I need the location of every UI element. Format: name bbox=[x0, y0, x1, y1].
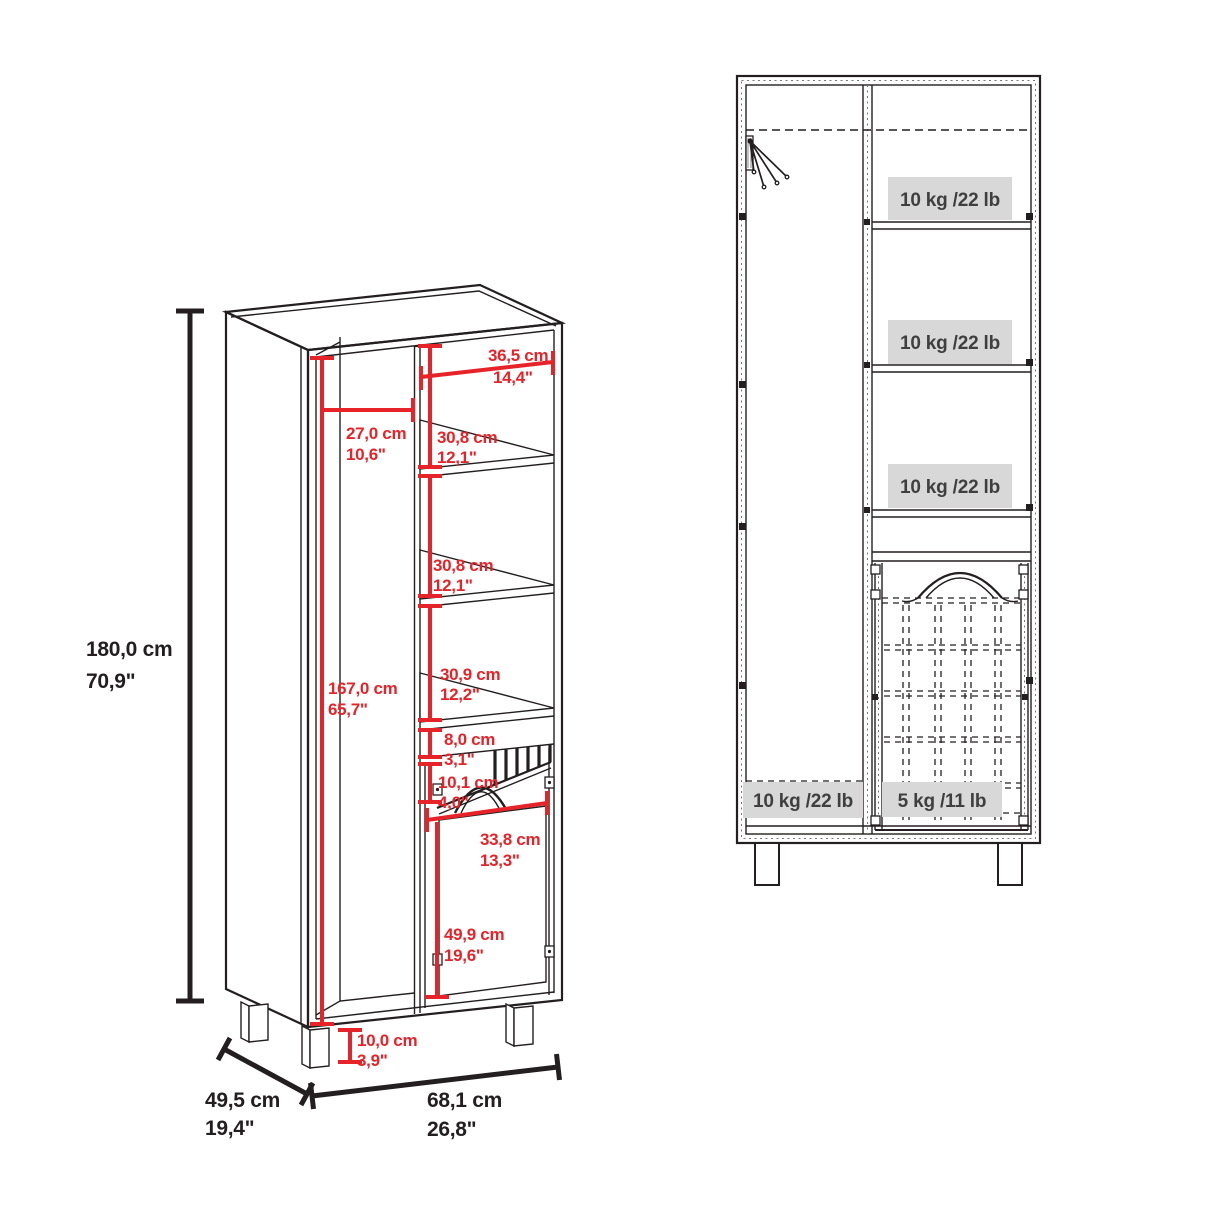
capacity-labels: 10 kg /22 lb 10 kg /22 lb 10 kg /22 lb 1… bbox=[743, 177, 1012, 818]
width-dimension: 68,1 cm 26,8" bbox=[311, 1054, 560, 1141]
total-height-inch: 70,9" bbox=[86, 670, 135, 693]
left-compartment-capacity-label: 10 kg /22 lb bbox=[743, 782, 863, 818]
vent-height-cm: 10,1 cm bbox=[438, 773, 498, 792]
legs-front bbox=[755, 843, 1022, 885]
bottom-shelf-capacity-text: 10 kg /22 lb bbox=[900, 477, 1000, 498]
door-width-cm: 33,8 cm bbox=[480, 830, 540, 849]
middle-shelf-capacity-label: 10 kg /22 lb bbox=[888, 320, 1012, 364]
top-shelf-spacing-cm: 30,8 cm bbox=[437, 428, 497, 447]
right-compartment-width-dimension: 36,5 cm 14,4" bbox=[421, 346, 553, 390]
vent-height-dimension: 10,1 cm 4,0" bbox=[418, 764, 498, 812]
perspective-view: 180,0 cm 70,9" bbox=[86, 285, 562, 1141]
left-compartment-width-cm: 27,0 cm bbox=[346, 424, 406, 443]
diagram-page: 180,0 cm 70,9" bbox=[0, 0, 1214, 1214]
bottom-shelf-capacity-label: 10 kg /22 lb bbox=[888, 464, 1012, 508]
depth-dimension: 49,5 cm 19,4" bbox=[205, 1038, 313, 1140]
total-height-dimension: 180,0 cm 70,9" bbox=[86, 311, 204, 1001]
middle-shelf-spacing-inch: 12,1" bbox=[433, 576, 473, 595]
door-width-inch: 13,3" bbox=[480, 851, 520, 870]
width-cm: 68,1 cm bbox=[427, 1089, 502, 1112]
door-height-inch: 19,6" bbox=[444, 946, 484, 965]
leg-height-cm: 10,0 cm bbox=[357, 1031, 417, 1050]
door-height-cm: 49,9 cm bbox=[444, 925, 504, 944]
depth-inch: 19,4" bbox=[205, 1117, 254, 1140]
total-height-cm: 180,0 cm bbox=[86, 638, 172, 661]
bottom-shelf-spacing-inch: 12,2" bbox=[440, 685, 480, 704]
interior-height-cm: 167,0 cm bbox=[328, 679, 398, 698]
right-compartment-width-cm: 36,5 cm bbox=[488, 346, 548, 365]
shelf-pin-dots bbox=[739, 213, 1033, 689]
top-shelf-capacity-label: 10 kg /22 lb bbox=[888, 177, 1012, 220]
front-shelf-lines bbox=[872, 222, 1031, 561]
drawer-front-height-cm: 8,0 cm bbox=[444, 730, 495, 749]
front-view: 10 kg /22 lb 10 kg /22 lb 10 kg /22 lb 1… bbox=[737, 76, 1040, 885]
top-shelf-spacing-inch: 12,1" bbox=[437, 448, 477, 467]
left-compartment-width-inch: 10,6" bbox=[346, 445, 386, 464]
drawer-front-height-inch: 3,1" bbox=[444, 750, 475, 769]
hooks-icon bbox=[746, 136, 789, 189]
vent-height-inch: 4,0" bbox=[438, 793, 469, 812]
right-compartment-width-inch: 14,4" bbox=[493, 368, 533, 387]
depth-cm: 49,5 cm bbox=[205, 1089, 280, 1112]
middle-shelf-spacing-cm: 30,8 cm bbox=[433, 556, 493, 575]
bottom-shelf-spacing-cm: 30,9 cm bbox=[440, 665, 500, 684]
leg-height-inch: 3,9" bbox=[357, 1051, 388, 1070]
basket-capacity-label: 5 kg /11 lb bbox=[882, 782, 1002, 817]
width-inch: 26,8" bbox=[427, 1118, 476, 1141]
left-compartment-width-dimension: 27,0 cm 10,6" bbox=[322, 398, 413, 464]
left-compartment-capacity-text: 10 kg /22 lb bbox=[753, 791, 853, 812]
top-shelf-capacity-text: 10 kg /22 lb bbox=[900, 190, 1000, 211]
basket-handle-icon bbox=[918, 573, 1002, 598]
interior-height-inch: 65,7" bbox=[328, 700, 368, 719]
basket-capacity-text: 5 kg /11 lb bbox=[898, 791, 987, 812]
leg-height-dimension: 10,0 cm 3,9" bbox=[338, 1030, 417, 1070]
laundry-basket: 5 kg /11 lb bbox=[871, 563, 1028, 830]
furniture-dimension-diagram: 180,0 cm 70,9" bbox=[0, 0, 1214, 1214]
middle-shelf-capacity-text: 10 kg /22 lb bbox=[900, 333, 1000, 354]
